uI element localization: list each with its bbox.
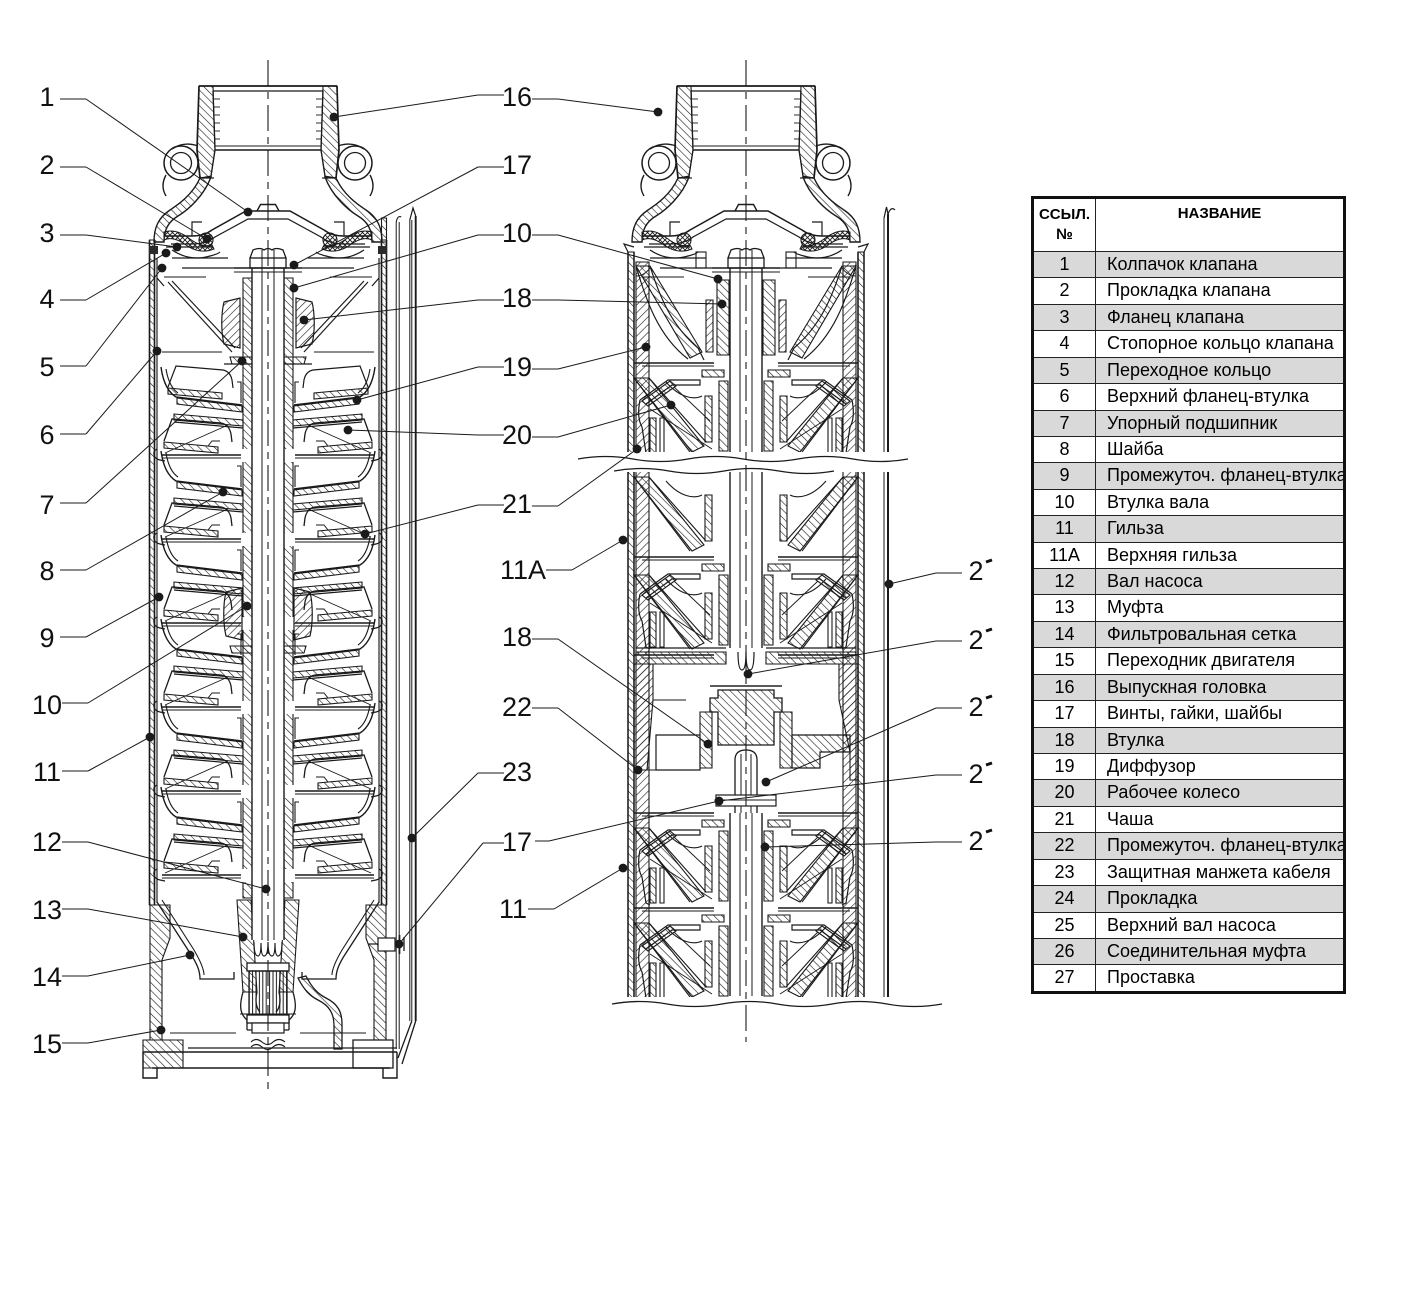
svg-text:14: 14 [32, 962, 62, 992]
svg-text:23: 23 [502, 757, 532, 787]
svg-text:11: 11 [499, 894, 527, 924]
svg-text:8: 8 [39, 556, 54, 586]
svg-text:6: 6 [39, 420, 54, 450]
svg-text:2: 2 [968, 759, 983, 789]
svg-text:9: 9 [39, 623, 54, 653]
svg-text:15: 15 [32, 1029, 62, 1059]
svg-text:2: 2 [968, 625, 983, 655]
svg-text:7: 7 [39, 490, 54, 520]
svg-text:10: 10 [32, 690, 62, 720]
svg-text:22: 22 [502, 692, 532, 722]
svg-text:2: 2 [39, 150, 54, 180]
svg-text:20: 20 [502, 420, 532, 450]
svg-text:16: 16 [502, 82, 532, 112]
svg-text:21: 21 [502, 489, 532, 519]
svg-text:18: 18 [502, 283, 532, 313]
svg-text:1: 1 [39, 82, 54, 112]
svg-text:18: 18 [502, 622, 532, 652]
svg-text:3: 3 [39, 218, 54, 248]
svg-text:5: 5 [39, 352, 54, 382]
svg-text:2: 2 [968, 692, 983, 722]
svg-text:4: 4 [39, 284, 54, 314]
svg-text:19: 19 [502, 352, 532, 382]
svg-text:11: 11 [33, 757, 61, 787]
svg-text:12: 12 [32, 827, 62, 857]
svg-text:2: 2 [968, 826, 983, 856]
svg-text:2: 2 [968, 556, 983, 586]
svg-text:11A: 11A [500, 555, 546, 585]
svg-text:13: 13 [32, 895, 62, 925]
svg-text:17: 17 [502, 827, 532, 857]
svg-text:10: 10 [502, 218, 532, 248]
svg-text:17: 17 [502, 150, 532, 180]
